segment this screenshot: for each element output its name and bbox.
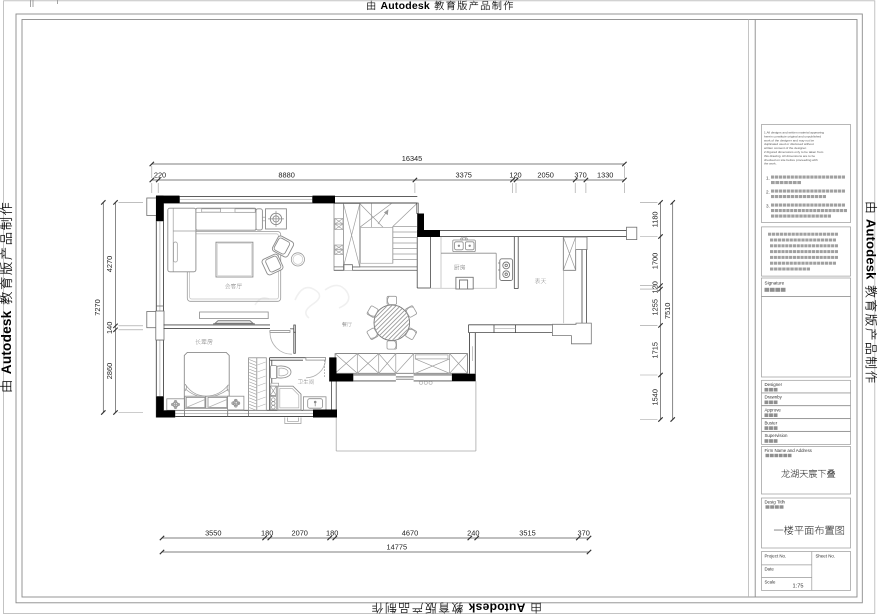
svg-text:Supervision: Supervision	[765, 433, 788, 438]
svg-text:Designer: Designer	[765, 382, 783, 387]
svg-text:8880: 8880	[278, 170, 294, 179]
svg-text:4670: 4670	[402, 528, 418, 537]
svg-text:3515: 3515	[519, 528, 535, 537]
svg-text:220: 220	[154, 170, 166, 179]
svg-text:3550: 3550	[205, 528, 221, 537]
svg-text:1:75: 1:75	[793, 584, 804, 590]
svg-text:2.: 2.	[766, 190, 770, 195]
svg-text:the work.: the work.	[764, 162, 777, 166]
svg-text:Autodesk: Autodesk	[0, 310, 14, 374]
svg-text:16345: 16345	[402, 154, 423, 163]
svg-text:1.: 1.	[766, 176, 770, 181]
svg-text:1700: 1700	[650, 253, 659, 269]
svg-text:2860: 2860	[105, 363, 114, 379]
svg-text:Drawnby: Drawnby	[765, 395, 783, 400]
svg-text:Project No.: Project No.	[765, 554, 787, 559]
svg-text:180: 180	[326, 528, 338, 537]
svg-text:2050: 2050	[537, 170, 553, 179]
svg-text:Autodesk: Autodesk	[864, 219, 878, 280]
svg-text:2070: 2070	[291, 528, 307, 537]
svg-text:1180: 1180	[650, 211, 659, 227]
svg-text:Firm Name and Address: Firm Name and Address	[765, 448, 813, 453]
svg-text:1330: 1330	[597, 170, 613, 179]
svg-text:Buster: Buster	[765, 420, 778, 425]
svg-text:Desig Titlh: Desig Titlh	[765, 499, 786, 504]
svg-text:3375: 3375	[455, 170, 471, 179]
svg-text:Scale: Scale	[765, 579, 777, 584]
svg-text:4270: 4270	[105, 256, 114, 272]
svg-text:Signature: Signature	[765, 280, 785, 285]
svg-text:Approve: Approve	[765, 407, 782, 412]
svg-text:240: 240	[467, 528, 479, 537]
svg-text:7510: 7510	[663, 303, 672, 319]
svg-text:140: 140	[105, 322, 114, 334]
svg-text:1540: 1540	[650, 389, 659, 405]
svg-text:Date: Date	[765, 567, 775, 572]
svg-text:180: 180	[261, 528, 273, 537]
svg-text:370: 370	[574, 170, 586, 179]
svg-text:Autodesk: Autodesk	[381, 0, 430, 12]
svg-text:14775: 14775	[387, 543, 408, 552]
svg-text:Autodesk: Autodesk	[468, 601, 525, 615]
svg-text:1715: 1715	[650, 342, 659, 358]
svg-text:7270: 7270	[93, 299, 102, 315]
svg-text:Sheet No.: Sheet No.	[816, 554, 836, 559]
svg-text:120: 120	[650, 281, 659, 293]
svg-text:1255: 1255	[650, 299, 659, 315]
svg-text:120: 120	[509, 170, 521, 179]
svg-text:370: 370	[578, 528, 590, 537]
svg-text:3.: 3.	[766, 204, 770, 209]
